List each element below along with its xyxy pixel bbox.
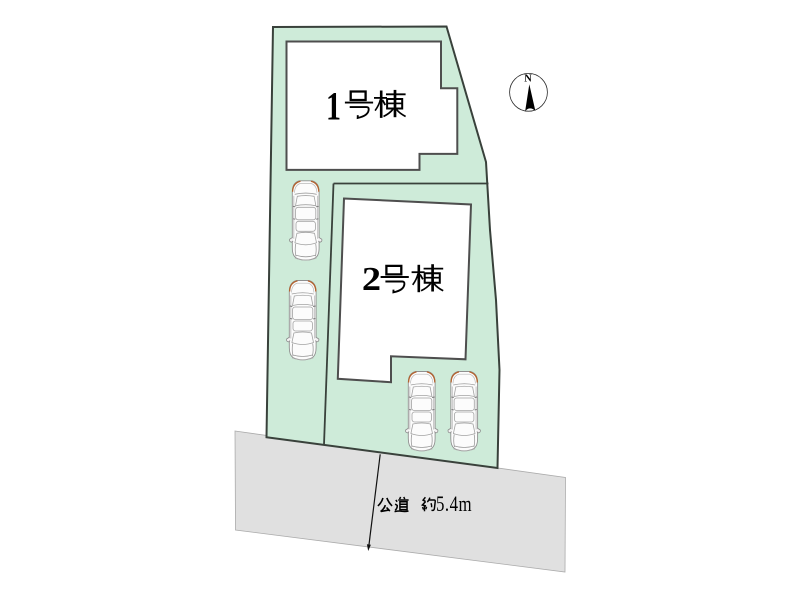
svg-text:5.4m: 5.4m (436, 493, 472, 516)
svg-text:2: 2 (362, 260, 381, 297)
svg-text:1: 1 (326, 83, 341, 128)
svg-text:N: N (524, 73, 532, 84)
